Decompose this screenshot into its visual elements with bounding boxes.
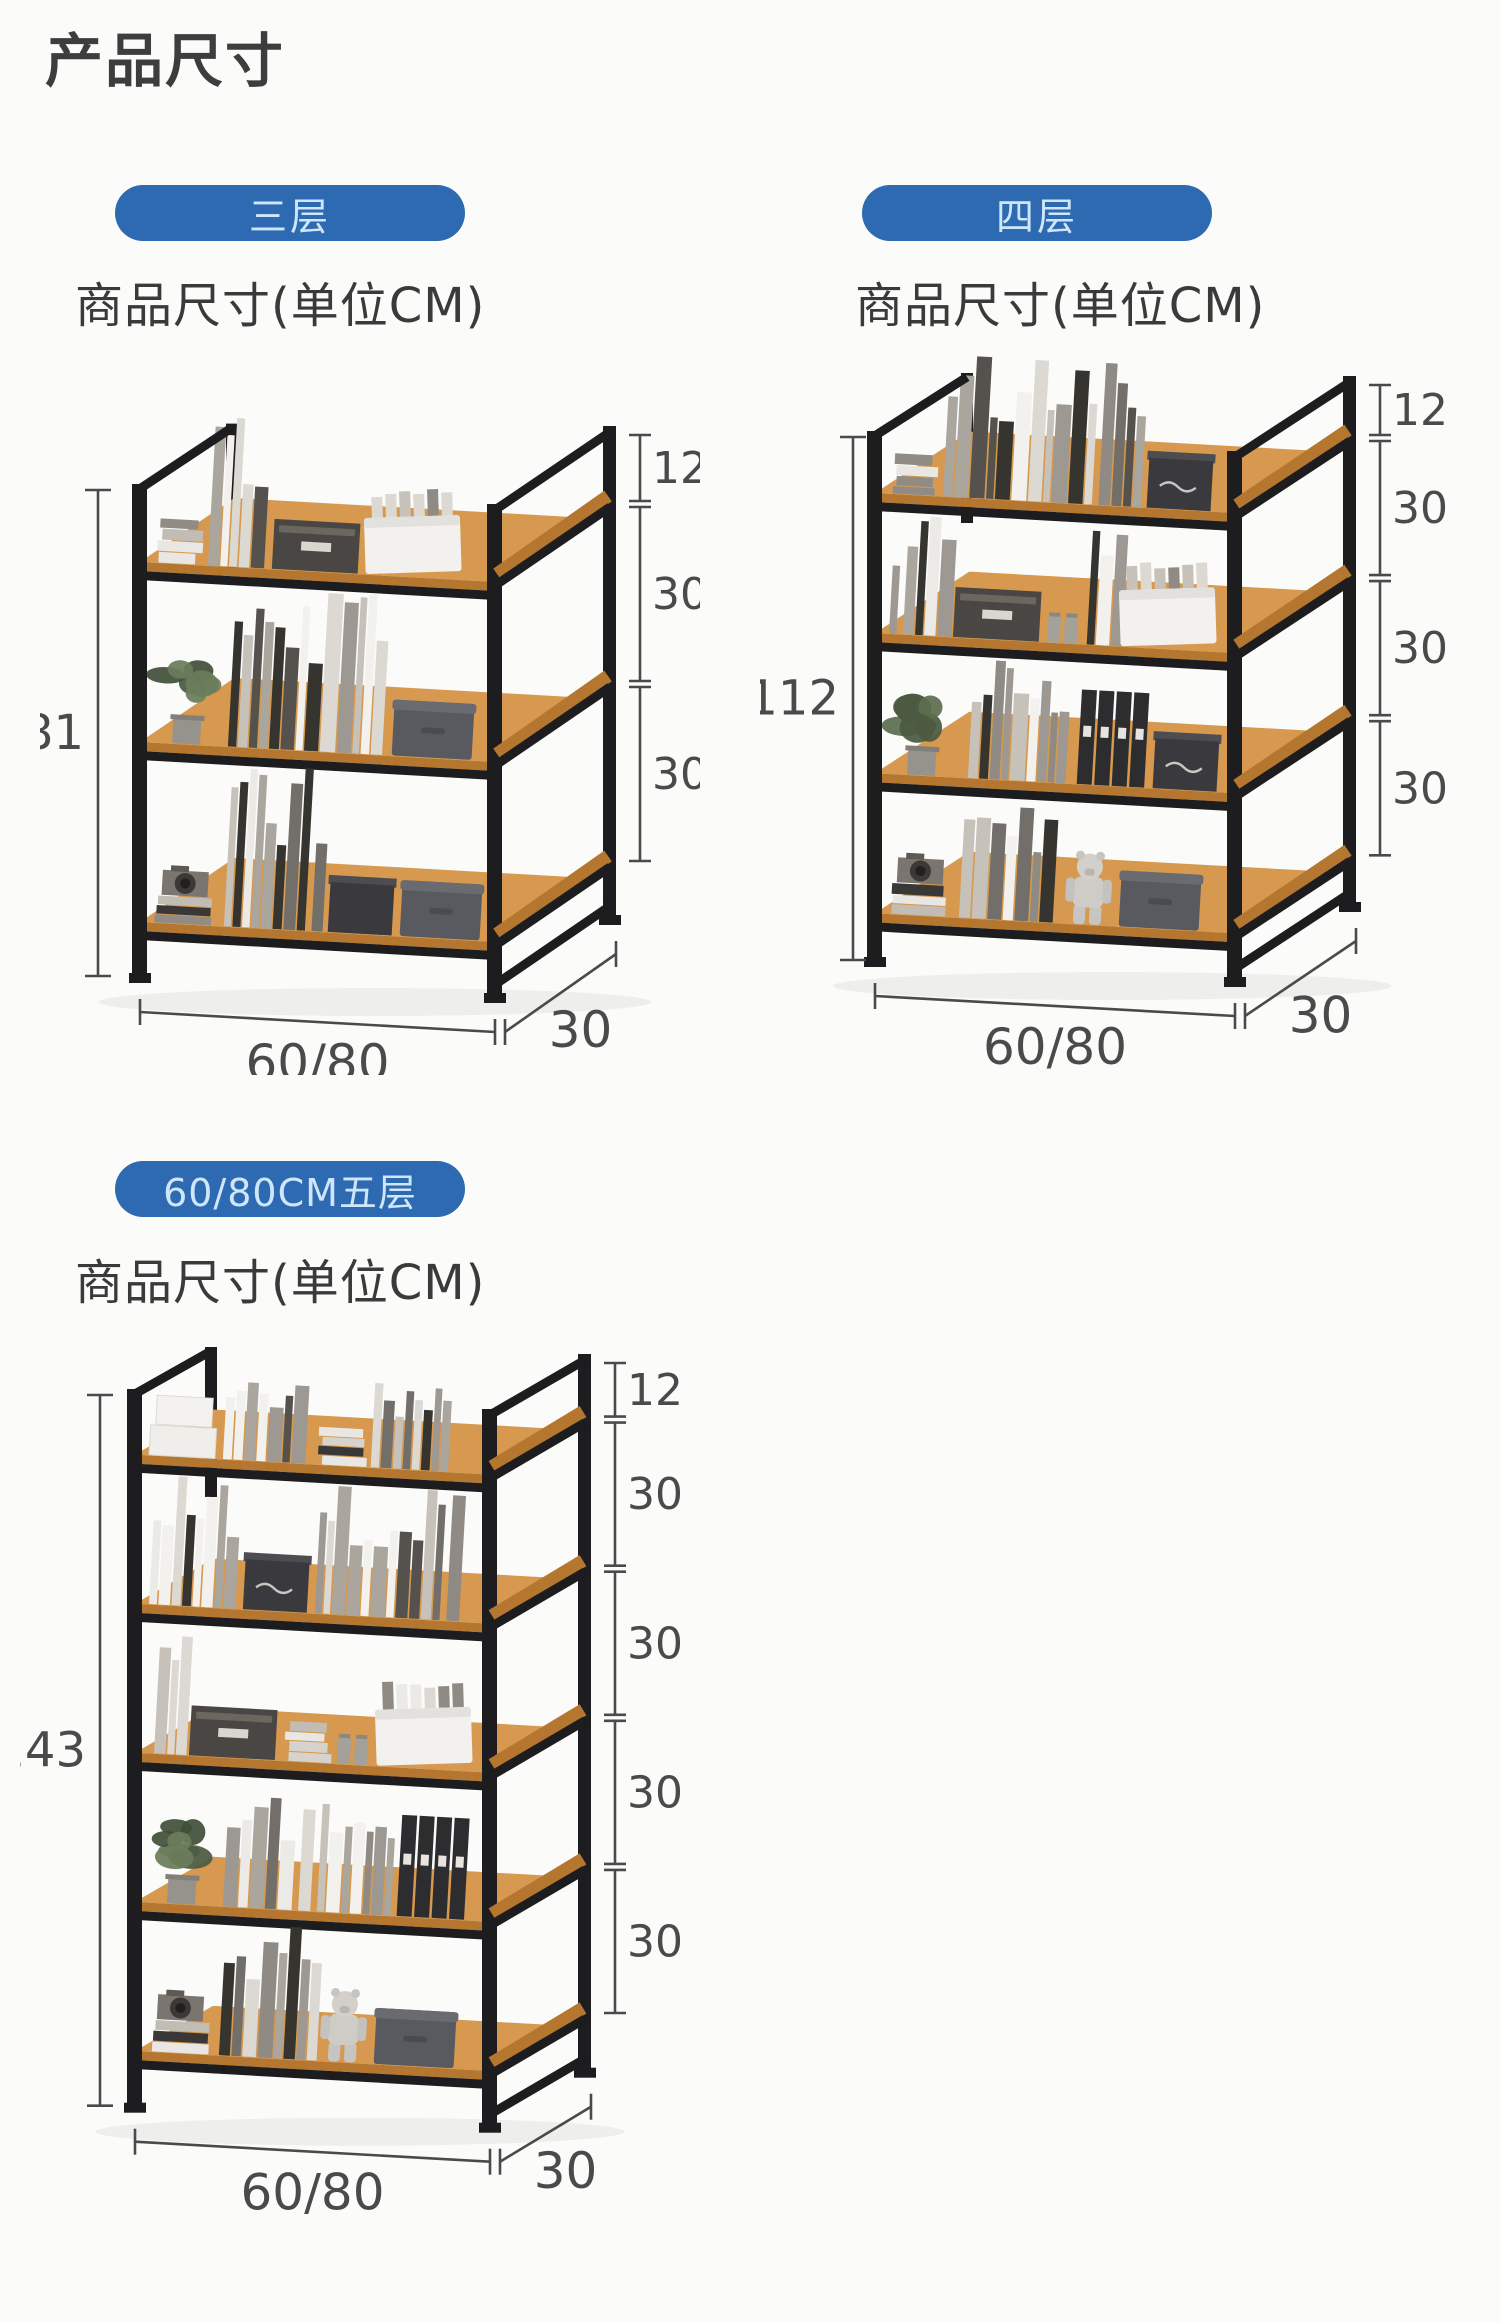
depth-dimension-label: 30	[1289, 987, 1353, 1045]
shelf-tier-items	[154, 760, 491, 940]
segment-dimension-label: 30	[1392, 763, 1448, 814]
depth-dimension-label: 30	[549, 1001, 613, 1059]
segment-dimension-label: 12	[627, 1365, 683, 1416]
shelf-tier-items	[142, 582, 482, 760]
segment-dimension-label: 30	[627, 1469, 683, 1520]
shelf-tier-items	[154, 1635, 479, 1771]
width-dimension-label: 60/80	[983, 1018, 1127, 1076]
segment-dimensions: 1230303030	[604, 1363, 683, 2013]
page-title: 产品尺寸	[45, 14, 285, 98]
heading-five-tier: 商品尺寸(单位CM)	[75, 1243, 485, 1313]
height-dimension: 112	[760, 437, 866, 960]
shelf-illustration-three-tier: 8112303060/8030	[40, 330, 700, 1075]
shelf-svg: 8112303060/8030	[40, 330, 700, 1075]
height-dimension: 143	[20, 1395, 113, 2106]
segment-dimension-label: 30	[652, 749, 700, 800]
shelf-illustration-five-tier: 143123030303060/8030	[20, 1330, 730, 2245]
shelf-svg: 1121230303060/8030	[760, 240, 1490, 1105]
badge-five-tier: 60/80CM五层	[115, 1161, 465, 1217]
heading-three-tier: 商品尺寸(单位CM)	[75, 266, 485, 336]
shelf-illustration-four-tier: 1121230303060/8030	[760, 240, 1490, 1105]
segment-dimensions: 12303030	[1369, 385, 1448, 855]
height-dimension-label: 143	[20, 1722, 86, 1778]
width-dimension-label: 60/80	[245, 1034, 389, 1075]
badge-four-tier: 四层	[862, 185, 1212, 241]
segment-dimension-label: 30	[627, 1618, 683, 1669]
height-dimension-label: 112	[760, 671, 839, 727]
depth-dimension: 30	[500, 2094, 597, 2201]
segment-dimension-label: 30	[1392, 483, 1448, 534]
depth-dimension-label: 30	[534, 2142, 598, 2200]
segment-dimensions: 123030	[629, 435, 700, 861]
shelf-tier-items	[149, 1371, 453, 1472]
height-dimension-label: 81	[40, 705, 84, 761]
segment-dimension-label: 30	[627, 1917, 683, 1968]
segment-dimension-label: 12	[652, 443, 700, 494]
segment-dimension-label: 30	[1392, 623, 1448, 674]
shelf-svg: 143123030303060/8030	[20, 1330, 730, 2245]
badge-three-tier: 三层	[115, 185, 465, 241]
segment-dimension-label: 30	[652, 569, 700, 620]
segment-dimension-label: 30	[627, 1767, 683, 1818]
width-dimension-label: 60/80	[240, 2164, 384, 2222]
segment-dimension-label: 12	[1392, 385, 1448, 436]
height-dimension: 81	[40, 490, 111, 976]
product-dimensions-page: 产品尺寸 三层 商品尺寸(单位CM) 8112303060/8030 四层 商品…	[0, 0, 1500, 2322]
